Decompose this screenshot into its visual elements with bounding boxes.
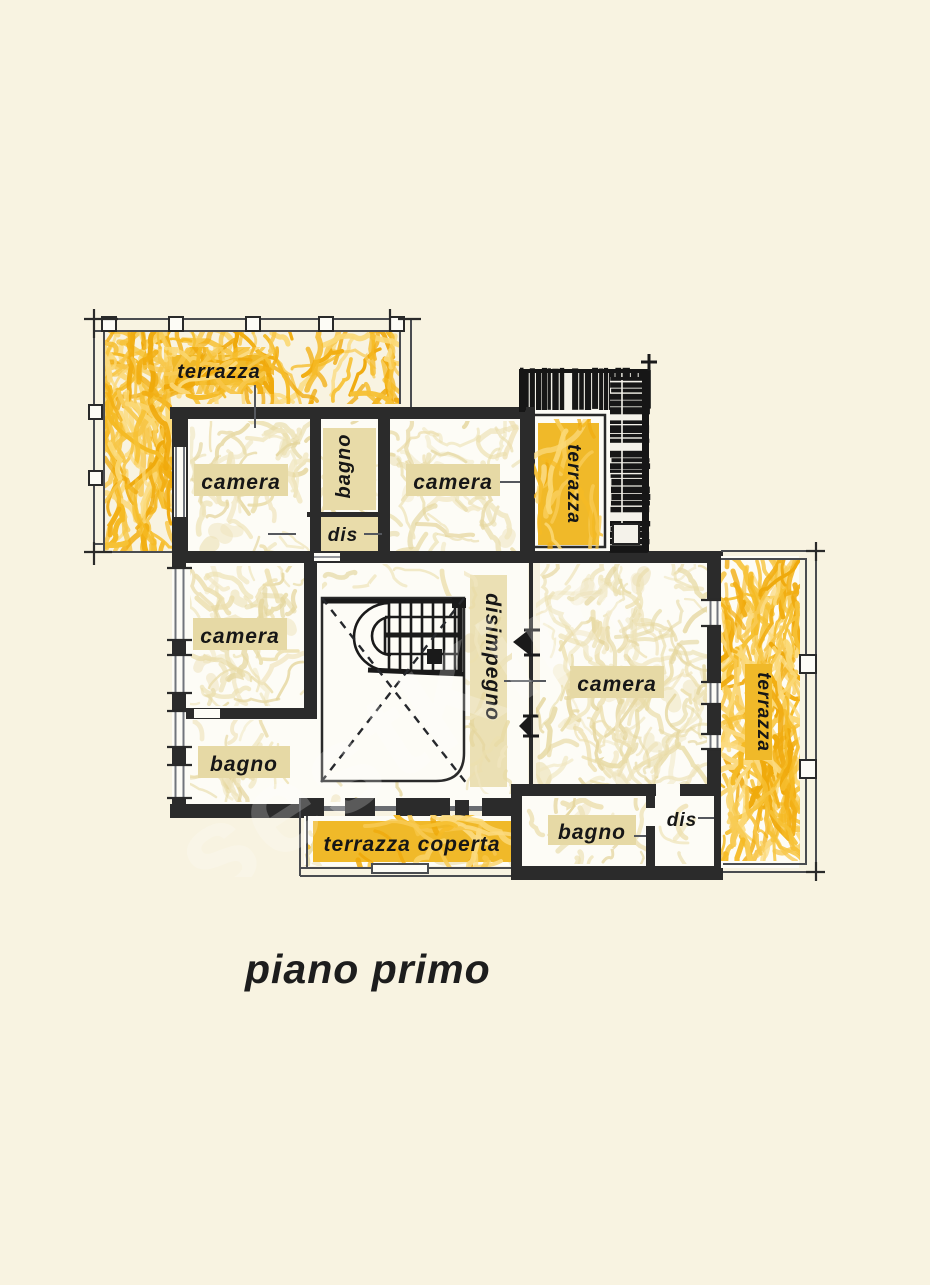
svg-text:bagno: bagno bbox=[333, 434, 355, 499]
svg-text:terrazza: terrazza bbox=[753, 672, 774, 752]
svg-text:dis: dis bbox=[667, 810, 697, 831]
svg-text:terrazza: terrazza bbox=[563, 444, 584, 524]
svg-text:bagno: bagno bbox=[558, 821, 626, 844]
svg-text:terrazza: terrazza bbox=[177, 361, 261, 383]
svg-text:camera: camera bbox=[200, 625, 280, 648]
svg-text:camera: camera bbox=[413, 471, 493, 494]
svg-text:piano primo: piano primo bbox=[244, 946, 491, 992]
svg-text:camera: camera bbox=[201, 471, 281, 494]
svg-text:dis: dis bbox=[328, 525, 358, 546]
